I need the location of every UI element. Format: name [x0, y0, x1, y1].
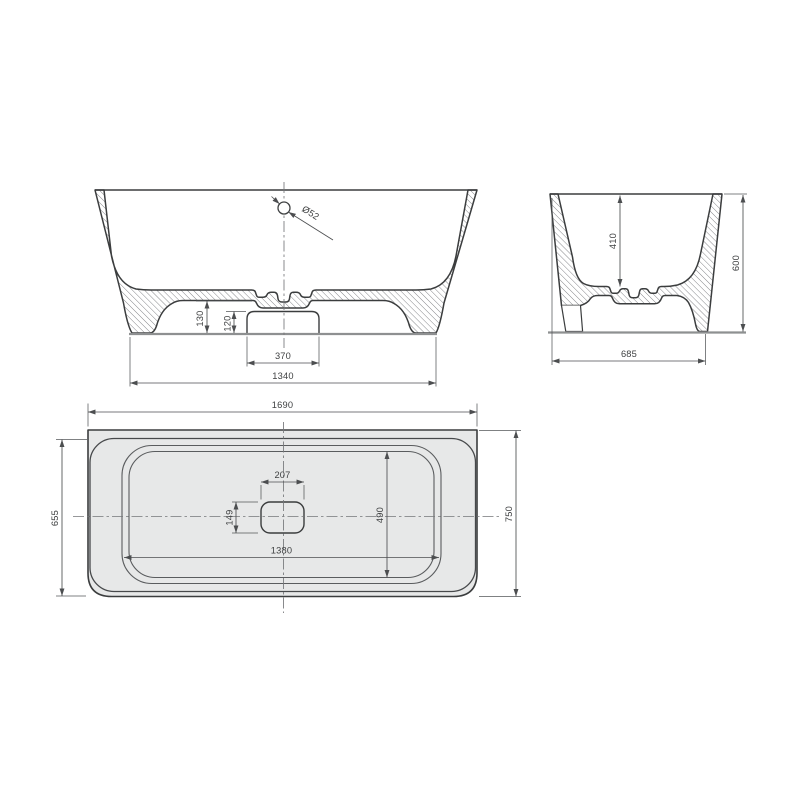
- dim-inner-length: 1380: [271, 546, 292, 556]
- side-section-view: 410 600 685: [548, 194, 747, 365]
- dim-overall-depth-plan: 750: [504, 506, 514, 522]
- dim-underfloor-height: 130: [195, 310, 205, 326]
- dim-drain-cutout-width: 149: [225, 509, 235, 525]
- drain-callout-arrow-nw: [272, 197, 280, 205]
- dim-base-width: 1340: [272, 371, 293, 381]
- dim-overall-depth-side: 685: [621, 349, 637, 359]
- bathtub-dimension-drawing: Ø52 130 120 370 1340 410 600: [0, 0, 800, 800]
- dim-overall-height: 600: [731, 255, 741, 271]
- dim-overall-length: 1690: [272, 400, 293, 410]
- drain-hole-circle: [278, 202, 290, 214]
- dim-plinth-height: 120: [223, 315, 233, 331]
- dim-plinth-width: 370: [275, 351, 291, 361]
- plan-outer-outline: [88, 430, 477, 597]
- side-foot: [562, 306, 583, 332]
- front-plinth: [247, 312, 319, 334]
- dim-drain-diameter: Ø52: [300, 204, 321, 222]
- dim-body-depth: 655: [50, 510, 60, 526]
- front-section-view: Ø52 130 120 370 1340: [95, 182, 477, 387]
- technical-drawing-page: Ø52 130 120 370 1340 410 600: [0, 0, 800, 800]
- dim-inner-width: 490: [375, 507, 385, 523]
- plan-view: 1690 655 750 1380 490 207 149: [50, 400, 521, 613]
- dim-inner-depth: 410: [608, 233, 618, 249]
- dim-drain-cutout-length: 207: [274, 470, 290, 480]
